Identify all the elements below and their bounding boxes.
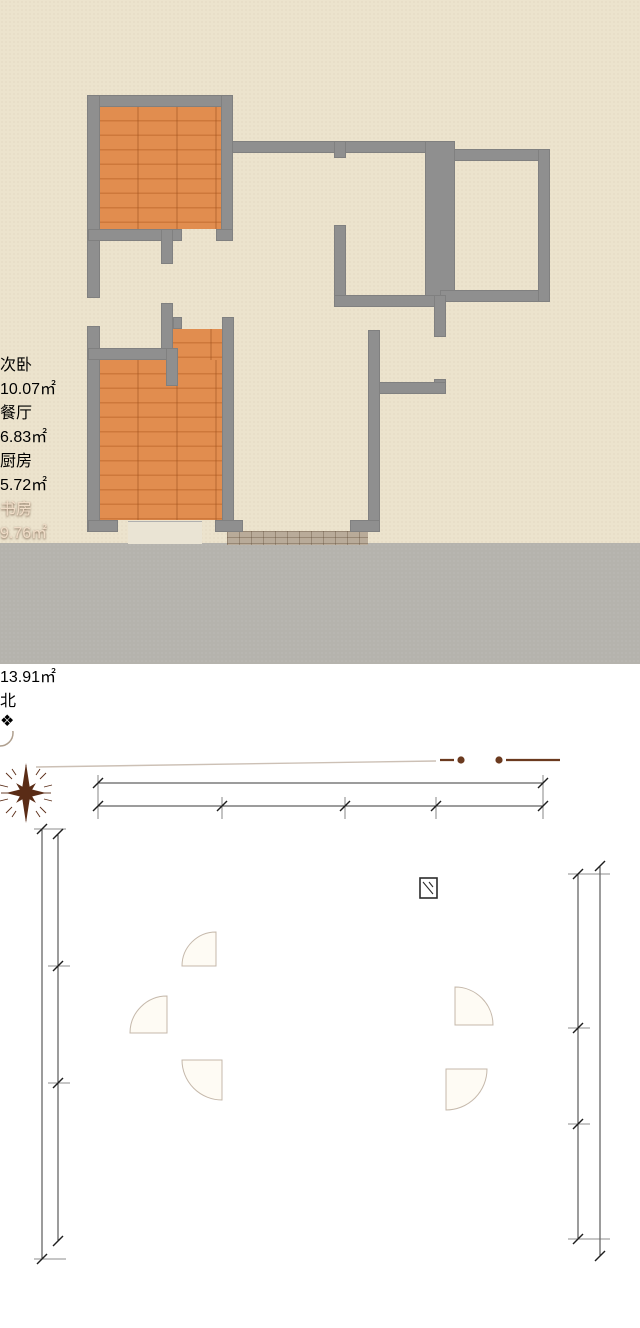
floor-study [455, 161, 538, 290]
door-study [0, 267, 12, 306]
door-entrance [0, 306, 12, 351]
bay-window-sill [128, 521, 202, 544]
wall [368, 330, 380, 521]
door-arc [455, 987, 493, 1025]
room-area: 13.91㎡ [0, 663, 640, 687]
door-arc [182, 932, 216, 966]
bay-window-post [0, 115, 13, 137]
wall [334, 141, 346, 158]
window [0, 80, 107, 93]
wall [161, 229, 173, 264]
balcony-brick-strip [227, 531, 368, 545]
floor-kitchen [346, 153, 425, 295]
dimension-lines [34, 775, 610, 1259]
ornament-flourish-icon: ❖ [0, 711, 640, 731]
floor-secondary-bedroom [100, 107, 221, 229]
wall [440, 149, 550, 161]
wall [87, 95, 100, 298]
floor-master-alcove [173, 329, 222, 360]
door-arc [130, 996, 167, 1033]
wall [88, 95, 232, 107]
wall [434, 295, 446, 337]
floor-dining [233, 153, 334, 241]
wall [440, 290, 550, 302]
wall [215, 520, 243, 532]
bottom-band [0, 543, 640, 664]
window [0, 13, 50, 26]
wall [221, 95, 233, 241]
door-secondary-bedroom [0, 137, 34, 149]
door-master-bedroom [0, 188, 40, 200]
door-arc [446, 1069, 487, 1110]
dimension-ticks [37, 778, 605, 1264]
wall [216, 229, 233, 241]
ornament-line [36, 756, 560, 767]
wall [166, 348, 178, 386]
door-bathroom [0, 149, 12, 188]
compass-rose-icon [0, 731, 52, 823]
window [0, 52, 13, 80]
floor-plan-canvas: 次卧 10.07㎡ 餐厅 6.83㎡ 厨房 5.72㎡ 书房 9.76㎡ 卫生间… [0, 0, 640, 664]
north-label: 北 [0, 687, 640, 711]
window [0, 39, 62, 52]
wall [334, 295, 446, 307]
door-arc [182, 1060, 222, 1100]
bay-window-post [0, 93, 13, 115]
window [0, 0, 80, 13]
wall [88, 520, 118, 532]
wall [425, 141, 455, 302]
wall [222, 317, 234, 521]
wall [538, 149, 550, 302]
kitchen-sink-icon [420, 878, 437, 898]
floor-bathroom [100, 241, 161, 348]
door-kitchen-slider [0, 200, 12, 267]
floor-master-bedroom [100, 360, 222, 520]
plan-annotations [0, 731, 640, 1328]
window [0, 26, 38, 39]
wall [173, 317, 182, 329]
wall [88, 348, 172, 360]
wall [350, 520, 380, 532]
